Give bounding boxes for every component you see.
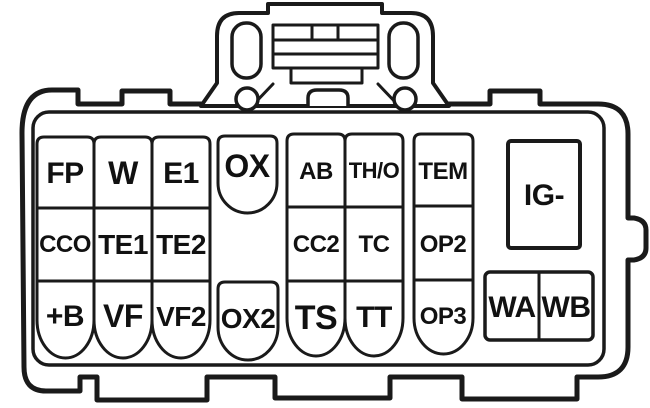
terminal-label-ox2: OX2 [221,303,276,334]
connector-diagram: FP W E1 OX AB TH/O TEM IG- CCO TE1 TE2 C… [0,0,650,408]
terminal-label-te2: TE2 [156,229,206,260]
connector-diagram-canvas: FP W E1 OX AB TH/O TEM IG- CCO TE1 TE2 C… [0,0,650,408]
latch-pin-right [394,88,416,110]
terminal-label-ox: OX [224,148,270,184]
latch-arch [308,90,348,106]
terminal-label-wb: WB [542,291,591,324]
terminal-label-wa: WA [488,291,535,324]
locking-tab [201,4,449,110]
terminal-label-vf2: VF2 [156,301,206,332]
terminal-label-w: W [108,155,139,191]
terminal-label-cc2: CC2 [293,231,340,258]
terminal-label-tem: TEM [418,158,467,185]
terminal-label-te1: TE1 [98,229,148,260]
terminal-label-plus-b: +B [46,300,84,333]
terminal-label-op2: OP2 [420,231,467,258]
terminal-label-tc: TC [359,231,390,258]
terminal-label-ts: TS [295,299,337,337]
terminal-label-vf: VF [103,298,143,334]
terminal-label-ab: AB [299,158,333,185]
terminal-label-e1: E1 [163,157,199,190]
terminal-label-fp: FP [46,157,83,190]
terminal-label-cco: CCO [39,231,91,258]
terminal-label-tho: TH/O [349,158,400,183]
terminal-label-op3: OP3 [420,303,467,330]
terminal-label-tt: TT [356,301,392,334]
terminal-label-ig: IG- [524,179,564,212]
latch-pin-left [236,88,258,110]
